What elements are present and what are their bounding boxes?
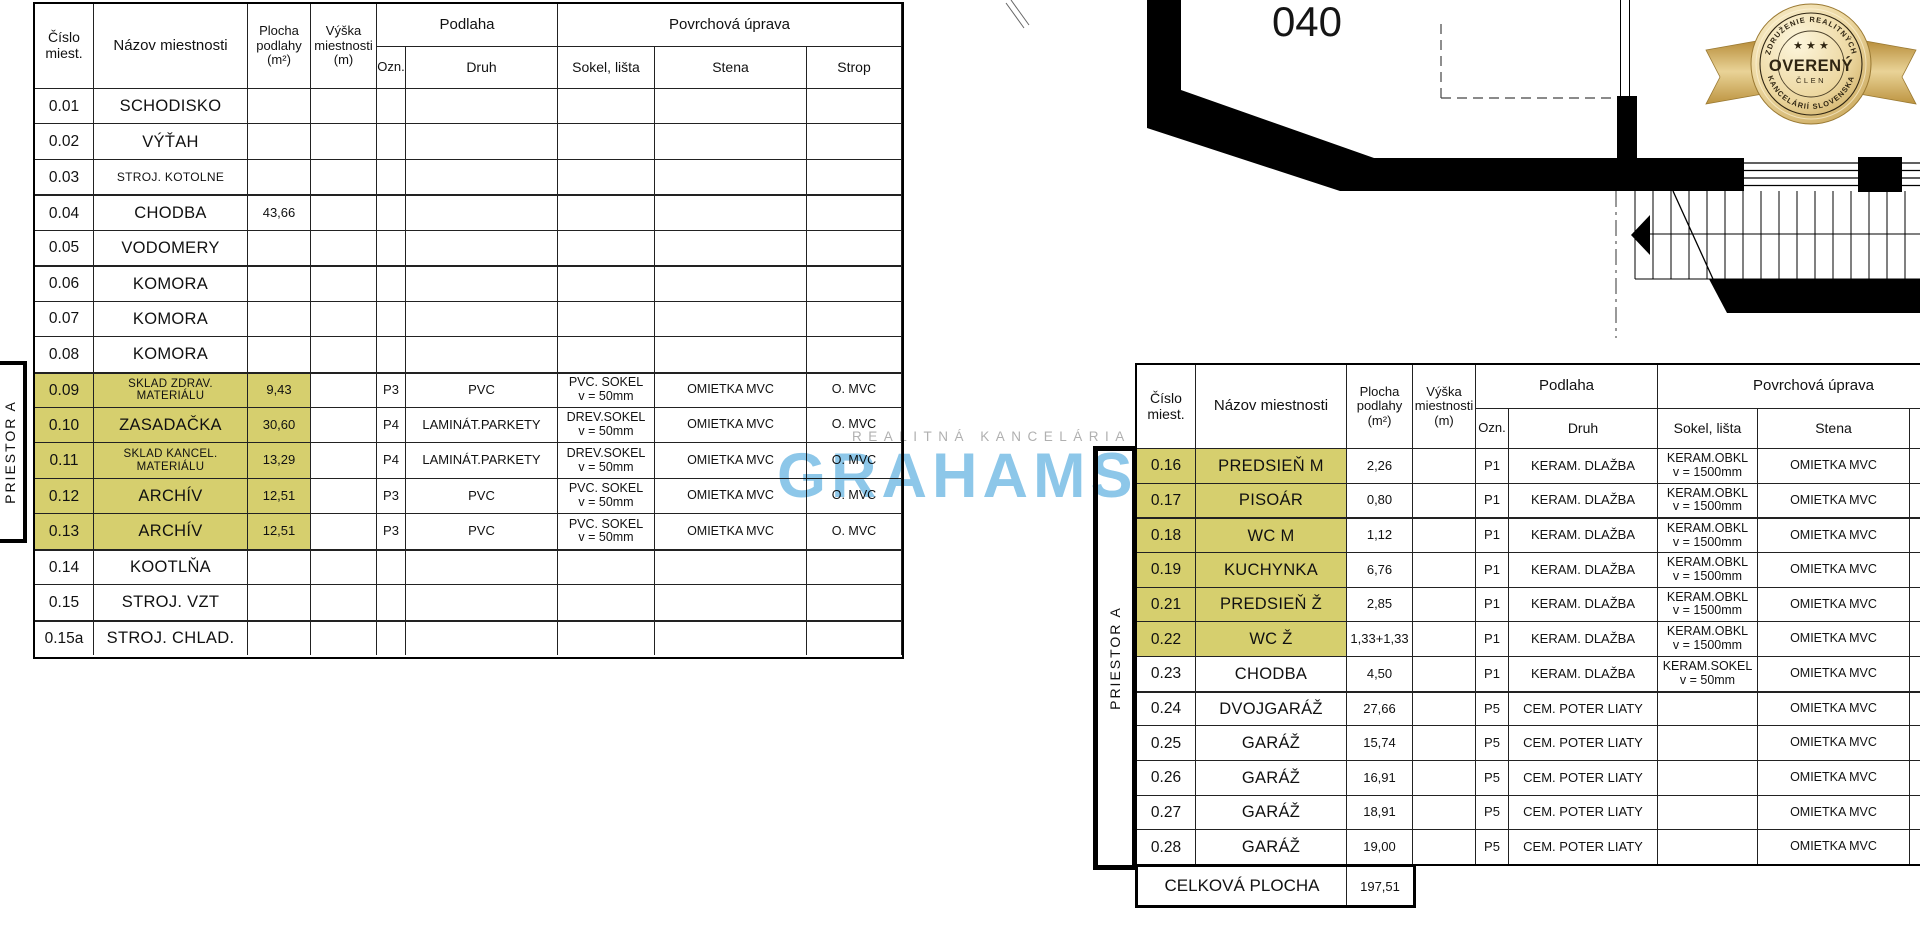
wall-horizontal [1360,158,1744,191]
cell-sokel [558,336,655,371]
cell-ozn: P4 [377,442,406,477]
cell-name: PREDSIEŇ Ž [1196,587,1347,622]
cell-name: VODOMERY [94,230,248,265]
cell-name: PISOÁR [1196,483,1347,518]
cell-sokel [558,159,655,194]
cell-sokel [558,584,655,619]
cell-strop [1910,691,1920,726]
cell-druh: CEM. POTER LIATY [1509,760,1658,795]
cell-ozn: P1 [1476,483,1509,518]
cell-sokel [558,301,655,336]
cell-sokel [558,620,655,655]
floorplan-fragment: 040 [985,0,1920,360]
cell-ozn [377,230,406,265]
cell-strop [1910,656,1920,691]
cell-sokel: KERAM.OBKLv = 1500mm [1658,448,1758,483]
col-header-podlaha: Podlaha [377,4,558,47]
floorplan-legend-page: Číslo miest. Názov miestnosti Plocha pod… [0,0,1920,938]
col-header-cislo: Číslo miest. [35,4,94,88]
cell-name: SKLAD ZDRAV.MATERIÁLU [94,372,248,407]
cell-strop: O. MVC [807,407,902,442]
cell-stena [655,159,807,194]
cell-num: 0.17 [1137,483,1196,518]
cell-druh [406,584,558,619]
room-number-label: 040 [1272,0,1342,45]
cell-area [248,159,311,194]
cell-height [311,194,377,229]
cell-height [1413,795,1476,830]
cell-strop [807,584,902,619]
cell-name: KOOTLŇA [94,549,248,584]
cell-ozn [377,194,406,229]
cell-name: GARÁŽ [1196,725,1347,760]
cell-name: STROJ. KOTOLNE [94,159,248,194]
badge-stars: ★ ★ ★ [1793,40,1829,52]
col-header-podlaha: Podlaha [1476,365,1658,409]
cell-strop [1910,483,1920,518]
cell-strop [1910,621,1920,656]
cell-sokel [558,194,655,229]
cell-height [1413,691,1476,726]
cell-ozn: P1 [1476,656,1509,691]
cell-num: 0.13 [35,513,94,548]
cell-strop [807,336,902,371]
cell-height [1413,552,1476,587]
cell-stena: OMIETKA MVC [1758,517,1910,552]
cell-strop [1910,517,1920,552]
cell-height [311,301,377,336]
cell-num: 0.19 [1137,552,1196,587]
cell-stena: OMIETKA MVC [1758,795,1910,830]
cell-num: 0.03 [35,159,94,194]
cell-druh [406,265,558,300]
col-header-cislo: Číslo miest. [1137,365,1196,448]
cell-num: 0.05 [35,230,94,265]
cell-druh [406,159,558,194]
cell-strop [807,159,902,194]
cell-num: 0.12 [35,478,94,513]
cell-druh: KERAM. DLAŽBA [1509,448,1658,483]
cell-druh: KERAM. DLAŽBA [1509,621,1658,656]
cell-ozn: P5 [1476,829,1509,864]
cell-name: VÝŤAH [94,123,248,158]
cell-stena [655,620,807,655]
cell-stena [655,230,807,265]
cell-ozn: P3 [377,478,406,513]
cell-stena: OMIETKA MVC [655,513,807,548]
cell-height [311,620,377,655]
wall-lower-band [1709,279,1920,313]
cell-area: 9,43 [248,372,311,407]
cell-druh: KERAM. DLAŽBA [1509,587,1658,622]
cell-sokel [1658,829,1758,864]
cell-name: STROJ. CHLAD. [94,620,248,655]
cell-sokel: KERAM.OBKLv = 1500mm [1658,552,1758,587]
cell-sokel [558,230,655,265]
cell-druh [406,123,558,158]
cell-sokel [558,265,655,300]
cell-strop [807,620,902,655]
col-header-plocha: Plocha podlahy (m²) [248,4,311,88]
col-header-stena: Stena [1758,409,1910,448]
cell-sokel: DREV.SOKELv = 50mm [558,442,655,477]
staircase [1635,191,1920,279]
cell-druh: PVC [406,478,558,513]
cell-ozn [377,336,406,371]
cell-sokel: PVC. SOKELv = 50mm [558,478,655,513]
cell-sokel: KERAM.OBKLv = 1500mm [1658,517,1758,552]
cell-height [311,372,377,407]
cell-num: 0.15 [35,584,94,619]
cell-height [1413,621,1476,656]
cell-strop [807,230,902,265]
cell-area: 30,60 [248,407,311,442]
cell-num: 0.26 [1137,760,1196,795]
cell-name: GARÁŽ [1196,795,1347,830]
priestor-a-label-left: PRIESTOR A [0,361,27,543]
col-header-povrchova: Povrchová úprava [1658,365,1920,409]
col-header-nazov: Názov miestnosti [94,4,248,88]
cell-ozn: P3 [377,372,406,407]
cell-stena [655,584,807,619]
cell-area: 15,74 [1347,725,1413,760]
cell-strop: O. MVC [807,372,902,407]
cell-sokel [558,88,655,123]
cell-druh [406,230,558,265]
cell-name: SKLAD KANCEL.MATERIÁLU [94,442,248,477]
cell-num: 0.15a [35,620,94,655]
hatch-line [1011,0,1029,25]
col-header-vyska: Výška miestnosti (m) [311,4,377,88]
cell-druh [406,88,558,123]
cell-stena: OMIETKA MVC [655,372,807,407]
cell-druh: KERAM. DLAŽBA [1509,656,1658,691]
cell-stena: OMIETKA MVC [1758,691,1910,726]
cell-num: 0.02 [35,123,94,158]
cell-area: 4,50 [1347,656,1413,691]
cell-druh: KERAM. DLAŽBA [1509,483,1658,518]
stair-direction-arrow-icon [1631,215,1650,255]
cell-strop [1910,829,1920,864]
cell-name: WC Ž [1196,621,1347,656]
cell-druh: LAMINÁT.PARKETY [406,442,558,477]
cell-druh: CEM. POTER LIATY [1509,691,1658,726]
cell-height [311,478,377,513]
wall-stub [1617,96,1637,158]
cell-name: CHODBA [1196,656,1347,691]
cell-area: 12,51 [248,513,311,548]
cell-strop: O. MVC [807,442,902,477]
cell-druh [406,620,558,655]
cell-sokel: KERAM.OBKLv = 1500mm [1658,621,1758,656]
room-table-left: Číslo miest. Názov miestnosti Plocha pod… [33,2,904,659]
cell-num: 0.25 [1137,725,1196,760]
cell-area: 1,12 [1347,517,1413,552]
cell-height [1413,829,1476,864]
cell-area: 16,91 [1347,760,1413,795]
cell-druh [406,301,558,336]
cell-strop: O. MVC [807,513,902,548]
cell-druh: KERAM. DLAŽBA [1509,517,1658,552]
cell-stena: OMIETKA MVC [1758,656,1910,691]
cell-area: 19,00 [1347,829,1413,864]
cell-strop [1910,587,1920,622]
cell-stena [655,194,807,229]
cell-num: 0.10 [35,407,94,442]
cell-sokel [1658,725,1758,760]
cell-area [248,230,311,265]
cell-name: KOMORA [94,265,248,300]
total-area-label: CELKOVÁ PLOCHA [1138,867,1346,905]
cell-sokel [1658,691,1758,726]
priestor-a-label-right: PRIESTOR A [1093,446,1137,870]
cell-area: 2,85 [1347,587,1413,622]
cell-sokel: KERAM.OBKLv = 1500mm [1658,587,1758,622]
total-area-box: CELKOVÁ PLOCHA 197,51 [1135,864,1416,908]
cell-name: KUCHYNKA [1196,552,1347,587]
total-area-value: 197,51 [1346,867,1413,905]
cell-druh: PVC [406,513,558,548]
cell-num: 0.09 [35,372,94,407]
cell-ozn: P1 [1476,517,1509,552]
cell-strop [807,301,902,336]
cell-druh [406,336,558,371]
cell-area [248,584,311,619]
cell-stena: OMIETKA MVC [655,407,807,442]
cell-height [311,230,377,265]
col-header-ozn: Ozn. [1476,409,1509,448]
cell-strop [807,123,902,158]
cell-height [1413,517,1476,552]
cell-sokel: KERAM.OBKLv = 1500mm [1658,483,1758,518]
cell-sokel [1658,795,1758,830]
cell-area: 18,91 [1347,795,1413,830]
cell-ozn [377,301,406,336]
cell-ozn [377,584,406,619]
cell-height [311,336,377,371]
cell-num: 0.24 [1137,691,1196,726]
cell-ozn: P5 [1476,795,1509,830]
cell-strop [807,88,902,123]
cell-strop: O. MVC [807,478,902,513]
cell-stena: OMIETKA MVC [1758,448,1910,483]
hatch-line [1006,3,1024,28]
cell-area [248,88,311,123]
cell-num: 0.22 [1137,621,1196,656]
col-header-ozn: Ozn. [377,47,406,88]
cell-area [248,549,311,584]
cell-ozn [377,265,406,300]
cell-ozn [377,549,406,584]
cell-sokel: DREV.SOKELv = 50mm [558,407,655,442]
cell-strop [1910,725,1920,760]
cell-sokel: PVC. SOKELv = 50mm [558,513,655,548]
cell-strop [1910,448,1920,483]
col-header-sokel: Sokel, lišta [1658,409,1758,448]
col-header-druh: Druh [1509,409,1658,448]
verified-member-badge: ZDRUŽENIE REALITNÝCH KANCELÁRIÍ SLOVENSK… [1706,4,1916,124]
cell-stena: OMIETKA MVC [1758,587,1910,622]
cell-sokel: PVC. SOKELv = 50mm [558,372,655,407]
cell-num: 0.07 [35,301,94,336]
cell-height [1413,656,1476,691]
cell-stena: OMIETKA MVC [1758,829,1910,864]
cell-druh: KERAM. DLAŽBA [1509,552,1658,587]
cell-height [1413,483,1476,518]
cell-ozn: P1 [1476,587,1509,622]
cell-area [248,123,311,158]
cell-ozn: P1 [1476,552,1509,587]
cell-num: 0.04 [35,194,94,229]
cell-area [248,301,311,336]
wall-diagonal [1147,90,1374,191]
cell-num: 0.27 [1137,795,1196,830]
cell-stena: OMIETKA MVC [655,478,807,513]
cell-ozn: P3 [377,513,406,548]
cell-druh: CEM. POTER LIATY [1509,829,1658,864]
cell-area: 27,66 [1347,691,1413,726]
col-header-plocha: Plocha podlahy (m²) [1347,365,1413,448]
cell-height [311,549,377,584]
cell-sokel [1658,760,1758,795]
cell-name: GARÁŽ [1196,760,1347,795]
cell-num: 0.28 [1137,829,1196,864]
cell-area: 12,51 [248,478,311,513]
cell-ozn: P5 [1476,691,1509,726]
cell-height [311,265,377,300]
cell-druh: CEM. POTER LIATY [1509,795,1658,830]
cell-stena: OMIETKA MVC [1758,621,1910,656]
cell-area [248,336,311,371]
cell-name: STROJ. VZT [94,584,248,619]
cell-height [1413,760,1476,795]
col-header-nazov: Názov miestnosti [1196,365,1347,448]
cell-height [311,407,377,442]
cell-stena [655,549,807,584]
cell-area: 13,29 [248,442,311,477]
cell-height [311,123,377,158]
cell-strop [807,194,902,229]
wall-vertical [1147,0,1181,100]
cell-ozn: P4 [377,407,406,442]
cell-stena [655,301,807,336]
cell-druh [406,549,558,584]
cell-sokel: KERAM.SOKELv = 50mm [1658,656,1758,691]
wall-pier [1858,157,1902,192]
cell-height [1413,587,1476,622]
cell-stena: OMIETKA MVC [1758,552,1910,587]
cell-num: 0.11 [35,442,94,477]
cell-num: 0.16 [1137,448,1196,483]
cell-ozn [377,620,406,655]
col-header-vyska: Výška miestnosti (m) [1413,365,1476,448]
col-header-povrchova: Povrchová úprava [558,4,902,47]
cell-ozn [377,88,406,123]
cell-height [311,88,377,123]
cell-name: GARÁŽ [1196,829,1347,864]
cell-stena [655,336,807,371]
cell-ozn: P5 [1476,725,1509,760]
cell-druh: CEM. POTER LIATY [1509,725,1658,760]
cell-ozn: P1 [1476,621,1509,656]
cell-height [311,584,377,619]
cell-num: 0.06 [35,265,94,300]
cell-name: ARCHÍV [94,513,248,548]
cell-sokel [558,123,655,158]
cell-area [248,265,311,300]
cell-area [248,620,311,655]
cell-height [1413,725,1476,760]
cell-area: 0,80 [1347,483,1413,518]
cell-height [311,442,377,477]
cell-num: 0.18 [1137,517,1196,552]
cell-ozn [377,159,406,194]
cell-num: 0.21 [1137,587,1196,622]
cell-stena: OMIETKA MVC [655,442,807,477]
cell-area: 6,76 [1347,552,1413,587]
badge-subtitle: ČLEN [1796,76,1826,85]
cell-height [311,159,377,194]
badge-title: OVERENÝ [1769,56,1853,75]
col-header-sokel: Sokel, lišta [558,47,655,88]
cell-height [1413,448,1476,483]
cell-name: KOMORA [94,301,248,336]
cell-strop [807,549,902,584]
cell-name: KOMORA [94,336,248,371]
cell-strop [1910,795,1920,830]
cell-ozn: P1 [1476,448,1509,483]
cell-stena: OMIETKA MVC [1758,483,1910,518]
cell-num: 0.23 [1137,656,1196,691]
cell-stena [655,88,807,123]
col-header-stena: Stena [655,47,807,88]
cell-stena [655,123,807,158]
cell-druh: LAMINÁT.PARKETY [406,407,558,442]
cell-num: 0.14 [35,549,94,584]
cell-sokel [558,549,655,584]
cell-druh [406,194,558,229]
cell-area: 43,66 [248,194,311,229]
cell-name: PREDSIEŇ M [1196,448,1347,483]
cell-name: ARCHÍV [94,478,248,513]
cell-name: SCHODISKO [94,88,248,123]
cell-height [311,513,377,548]
col-header-strop: Strop [807,47,902,88]
col-header-strop [1910,409,1920,448]
cell-name: WC M [1196,517,1347,552]
cell-name: ZASADAČKA [94,407,248,442]
cell-name: DVOJGARÁŽ [1196,691,1347,726]
cell-druh: PVC [406,372,558,407]
cell-stena [655,265,807,300]
cell-stena: OMIETKA MVC [1758,725,1910,760]
col-header-druh: Druh [406,47,558,88]
cell-strop [1910,552,1920,587]
cell-stena: OMIETKA MVC [1758,760,1910,795]
cell-strop [1910,760,1920,795]
cell-num: 0.08 [35,336,94,371]
cell-area: 2,26 [1347,448,1413,483]
cell-ozn: P5 [1476,760,1509,795]
cell-name: CHODBA [94,194,248,229]
cell-num: 0.01 [35,88,94,123]
cell-ozn [377,123,406,158]
cell-area: 1,33+1,33 [1347,621,1413,656]
cell-strop [807,265,902,300]
room-table-right: Číslo miest. Názov miestnosti Plocha pod… [1135,363,1920,866]
